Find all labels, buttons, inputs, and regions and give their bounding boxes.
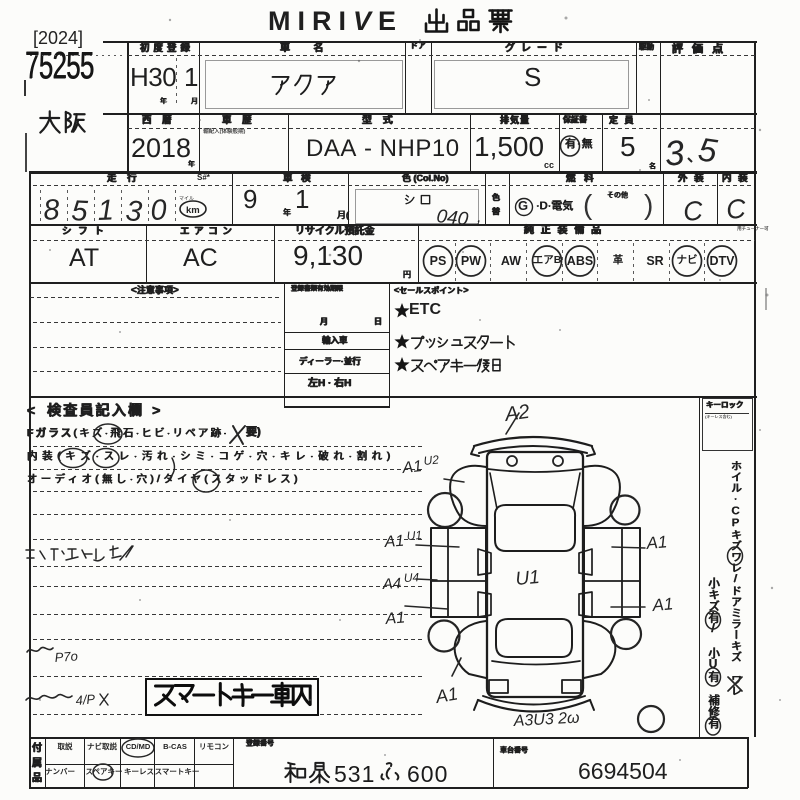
svg-text:A1: A1 [401, 458, 423, 477]
svg-text:km: km [186, 205, 200, 216]
svg-text:A1: A1 [383, 533, 405, 551]
svg-text:U1: U1 [406, 528, 422, 543]
svg-text:P7o: P7o [54, 648, 78, 665]
svg-text:600: 600 [407, 761, 448, 787]
svg-text:A2: A2 [503, 401, 531, 426]
svg-text:マイル: マイル [179, 196, 194, 202]
svg-text:040: 040 [435, 206, 469, 230]
svg-text:8: 8 [42, 194, 60, 227]
svg-text:C: C [682, 195, 705, 227]
svg-text:A4: A4 [381, 575, 401, 593]
svg-text:U4: U4 [403, 570, 419, 585]
svg-text:4/P: 4/P [75, 691, 96, 708]
svg-text:A1: A1 [651, 594, 674, 615]
svg-text:3: 3 [124, 195, 143, 228]
svg-text:5: 5 [71, 195, 90, 228]
svg-text:3: 3 [663, 133, 687, 174]
svg-text:A1: A1 [645, 532, 668, 553]
svg-text:U1: U1 [515, 567, 541, 590]
svg-text:1: 1 [97, 194, 114, 227]
svg-text:A1: A1 [384, 609, 406, 628]
svg-text:531: 531 [334, 761, 375, 787]
svg-text:A1: A1 [433, 683, 459, 707]
svg-text:,: , [477, 209, 481, 226]
svg-text:A3U3 2ω: A3U3 2ω [512, 710, 580, 730]
svg-text:U2: U2 [423, 452, 440, 468]
svg-text:5: 5 [696, 130, 720, 169]
svg-text:C: C [725, 193, 748, 225]
svg-text:0: 0 [150, 194, 168, 227]
